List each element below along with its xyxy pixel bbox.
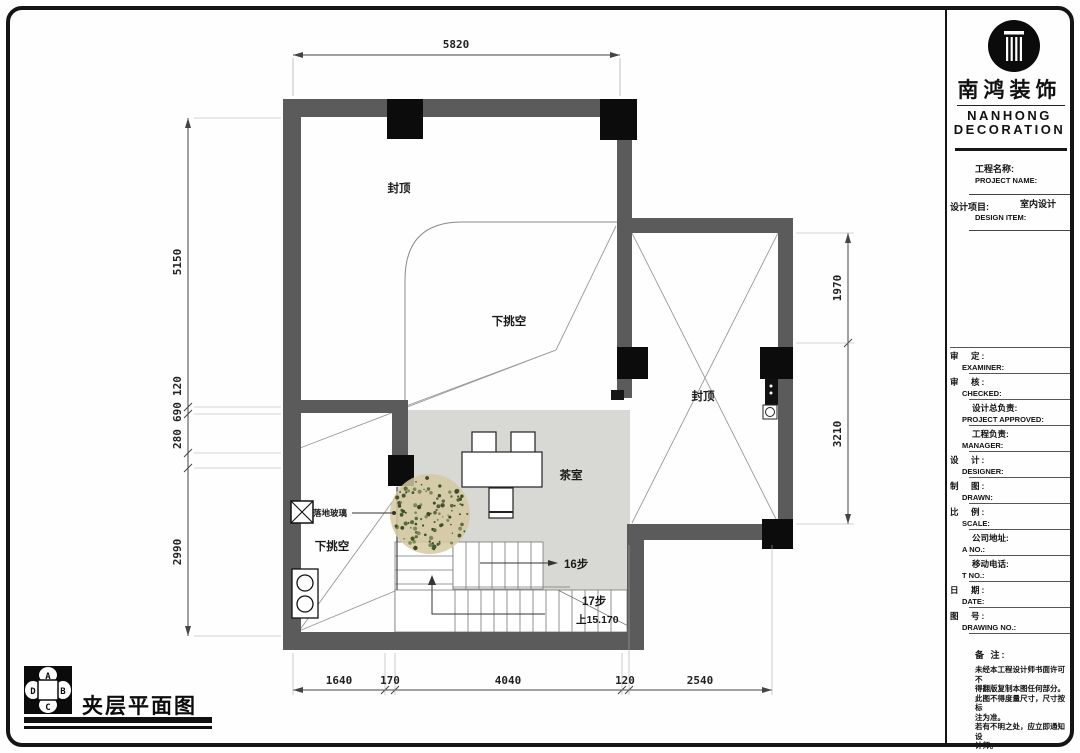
- drawing-sheet: 封顶 下挑空 茶室 封顶 下挑空 落地玻璃 16步 17步 上15.170 58…: [0, 0, 1080, 753]
- sheet-border: [6, 6, 1074, 747]
